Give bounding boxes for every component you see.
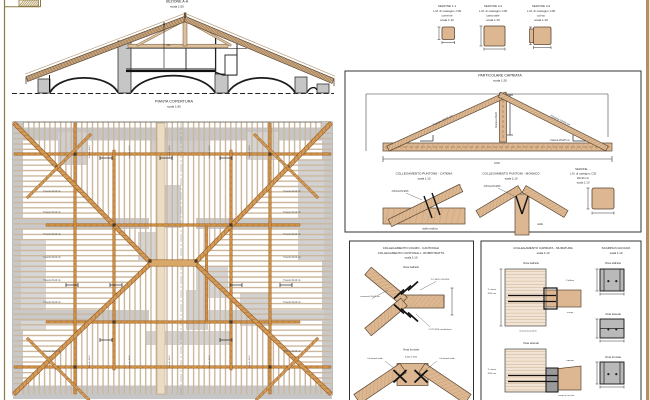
svg-text:Travetto 8x10 cm: Travetto 8x10 cm [43,279,61,282]
svg-text:Ø16 mm: Ø16 mm [488,373,497,375]
svg-text:bullone M16: bullone M16 [405,357,418,359]
svg-text:Travetto 8x10 cm: Travetto 8x10 cm [283,301,301,304]
svg-text:Travetto 8x10 cm: Travetto 8x10 cm [283,233,301,236]
svg-text:scala 1:10: scala 1:10 [405,256,418,260]
svg-text:COLLEGAMENTO COLMO - CANTONALI: COLLEGAMENTO COLMO - CANTONALI [383,246,440,250]
svg-text:colmo: colmo [537,13,545,17]
svg-text:COLLEGAMENTO CAPRIATA - MURATU: COLLEGAMENTO CAPRIATA - MURATURA [513,246,573,250]
svg-text:scala 1:10: scala 1:10 [418,177,431,181]
svg-text:Vista dall'alto: Vista dall'alto [523,261,540,265]
svg-text:Travetto 8x10: Travetto 8x10 [88,145,91,159]
svg-text:COLLEGAMENTO CANTONALI - ROMPI: COLLEGAMENTO CANTONALI - ROMPITRATTA [378,251,445,255]
svg-text:Vista laterale: Vista laterale [605,312,622,316]
svg-text:L.M. di castagno C30: L.M. di castagno C30 [527,9,556,13]
svg-text:Travetto 8x10: Travetto 8x10 [208,145,211,159]
svg-text:1020: 1020 [494,161,500,165]
svg-text:scala 1:10: scala 1:10 [610,251,623,255]
svg-text:Travetto 8x10: Travetto 8x10 [208,355,211,369]
svg-text:capriata: capriata [566,359,575,362]
svg-text:scala 1:10: scala 1:10 [577,181,590,185]
svg-text:scala 1:20: scala 1:20 [493,79,507,83]
svg-text:4 tirafondi staffa: 4 tirafondi staffa [439,357,455,360]
svg-text:SCARPA IN ACCIAIO: SCARPA IN ACCIAIO [602,246,631,250]
svg-text:Travetto 8x10 cm: Travetto 8x10 cm [43,190,61,193]
svg-text:Travetto 8x10 cm: Travetto 8x10 cm [43,233,61,236]
svg-text:cantonale: cantonale [486,13,499,17]
svg-text:2 BULLONI Ø16: 2 BULLONI Ø16 [484,186,501,188]
svg-text:PARTICOLARE CAPRIATA: PARTICOLARE CAPRIATA [478,74,522,78]
svg-text:staffa: staffa [537,223,543,226]
svg-text:2 BULLONI Ø16: 2 BULLONI Ø16 [392,191,409,193]
svg-text:scala 1:10: scala 1:10 [486,18,500,22]
svg-text:SEZIONE 2-2: SEZIONE 2-2 [484,4,503,8]
svg-text:Vista laterale: Vista laterale [523,341,540,345]
svg-text:Travetto 8x10: Travetto 8x10 [88,355,91,369]
svg-text:scala 1:50: scala 1:50 [170,4,184,8]
svg-text:30x30 cm: 30x30 cm [577,176,590,180]
svg-text:Catena 20x25 cm: Catena 20x25 cm [550,139,570,142]
svg-text:scarpa: scarpa [567,311,574,314]
svg-text:scala 1:10: scala 1:10 [537,251,550,255]
svg-text:cantonale 20x20 cm: cantonale 20x20 cm [360,295,380,298]
svg-text:4 VITI Ø10 autofilettanti: 4 VITI Ø10 autofilettanti [429,328,452,331]
svg-text:L.M. di castagno C30: L.M. di castagno C30 [479,9,508,13]
svg-text:corrente: corrente [441,13,452,17]
svg-text:PIANTA COPERTURA: PIANTA COPERTURA [155,100,194,104]
svg-text:L.M. di castagno C30: L.M. di castagno C30 [570,172,597,176]
svg-text:Travetto 8x10: Travetto 8x10 [248,355,251,369]
svg-text:2 catene: 2 catene [488,288,497,291]
svg-text:Travetto 8x10 cm: Travetto 8x10 cm [283,256,301,259]
svg-text:staffa metallica: staffa metallica [422,228,438,231]
svg-text:Travetto 8x10 cm: Travetto 8x10 cm [43,256,61,259]
svg-text:SEZIONE 3-3: SEZIONE 3-3 [532,4,551,8]
svg-text:L.M. di castagno C30: L.M. di castagno C30 [433,9,462,13]
svg-text:2 catene: 2 catene [488,368,497,371]
svg-text:Ø16 mm: Ø16 mm [488,293,497,295]
svg-text:Vista dall'alto: Vista dall'alto [605,261,622,265]
svg-text:SEZIONE 1-1: SEZIONE 1-1 [438,4,457,8]
svg-text:Travetto 8x10: Travetto 8x10 [168,355,171,369]
svg-text:Travetto 8x10 cm: Travetto 8x10 cm [43,350,61,353]
svg-text:scala 1:50: scala 1:50 [167,104,181,108]
svg-text:4 tirafondi staffa: 4 tirafondi staffa [367,357,383,360]
svg-text:Vista dall'alto: Vista dall'alto [403,265,420,269]
svg-text:2+2 BULLONI Ø16: 2+2 BULLONI Ø16 [431,279,450,281]
svg-text:Travetto 8x10 cm: Travetto 8x10 cm [283,350,301,353]
svg-text:SEZIONE - -: SEZIONE - - [575,167,591,171]
svg-text:scala 1:10: scala 1:10 [534,18,548,22]
svg-text:Vista frontale: Vista frontale [403,348,420,352]
svg-text:2 bulloni: 2 bulloni [566,280,575,282]
svg-text:scala 1:10: scala 1:10 [440,18,454,22]
svg-text:Monaco 20x20: Monaco 20x20 [495,111,498,127]
svg-text:scala 1:10: scala 1:10 [505,177,518,181]
svg-text:Travetto 8x10 cm: Travetto 8x10 cm [43,211,61,214]
svg-text:scarpa in acciaio: scarpa in acciaio [558,394,575,397]
svg-text:Travetto 8x10: Travetto 8x10 [168,145,171,159]
svg-text:Travetto 8x10: Travetto 8x10 [128,355,131,369]
svg-text:Travetto 8x10: Travetto 8x10 [128,145,131,159]
svg-text:SEZIONE A-A: SEZIONE A-A [166,0,189,4]
svg-text:Travetto 8x10 cm: Travetto 8x10 cm [43,301,61,304]
svg-text:Travetto 8x10 cm: Travetto 8x10 cm [283,211,301,214]
svg-text:Vista frontale: Vista frontale [605,355,622,359]
svg-text:Travetto 8x10 cm: Travetto 8x10 cm [283,279,301,282]
svg-text:muratura portante: muratura portante [519,330,537,333]
svg-text:Travetto 8x10: Travetto 8x10 [248,145,251,159]
svg-text:COLLEGAMENTO PUNTONI - MONACO: COLLEGAMENTO PUNTONI - MONACO [482,172,540,176]
svg-text:Travetto 8x10 cm: Travetto 8x10 cm [283,190,301,193]
svg-text:COLLEGAMENTO PUNTONE - CATENA: COLLEGAMENTO PUNTONE - CATENA [396,172,454,176]
